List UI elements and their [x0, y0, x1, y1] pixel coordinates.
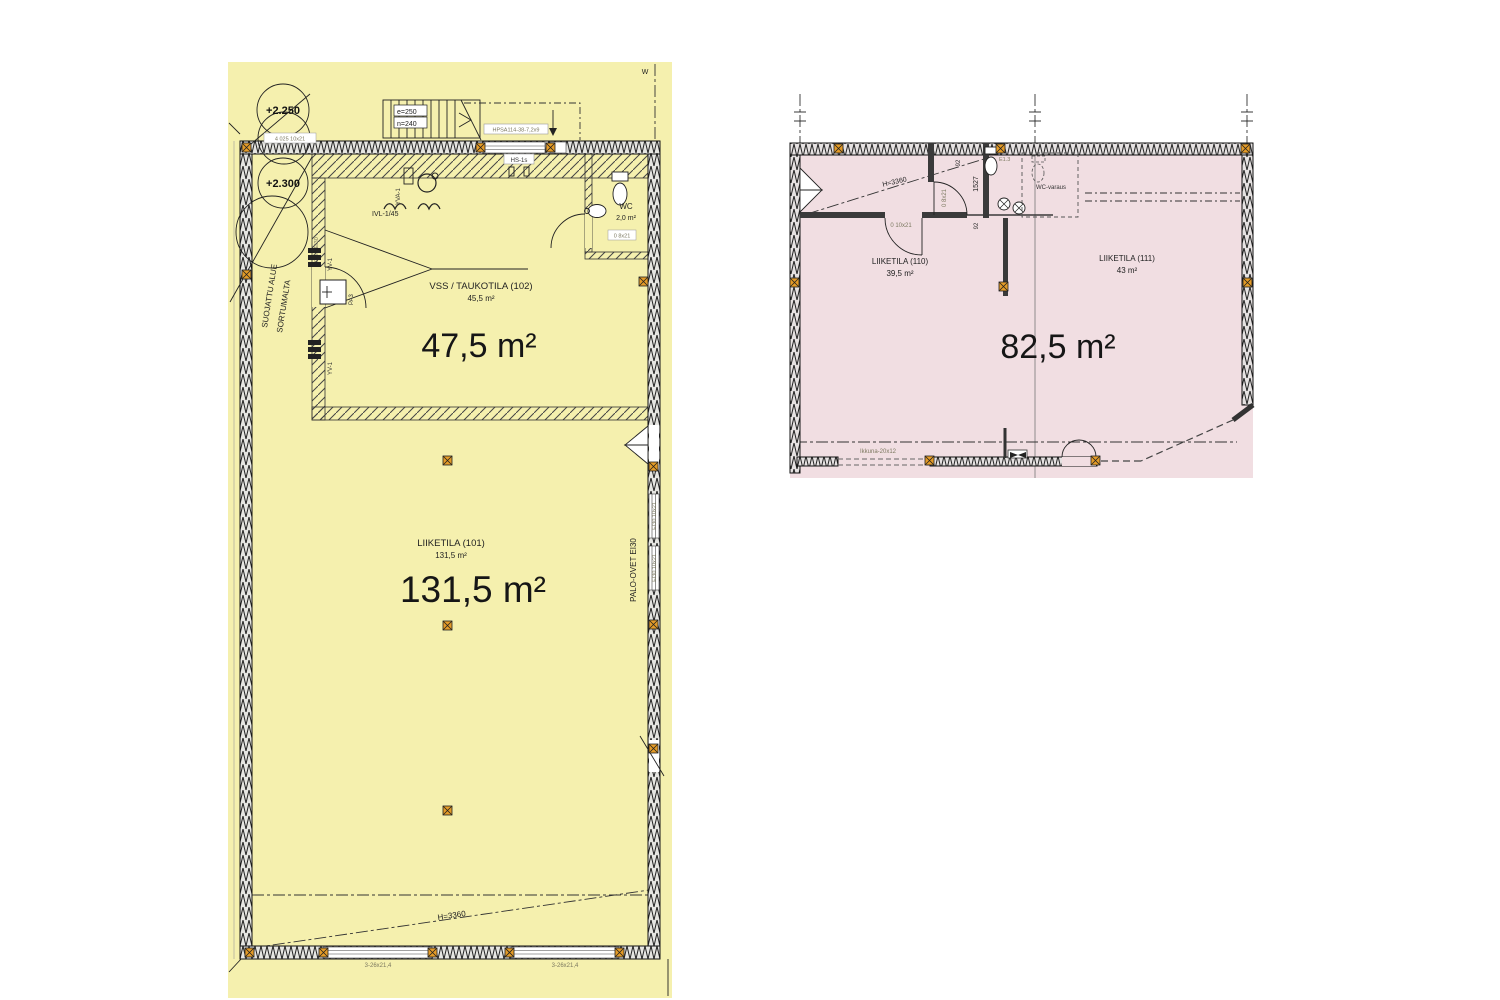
shop-101-title: LIIKETILA (101) — [417, 538, 485, 549]
dim-92-lower: 92 — [974, 222, 980, 229]
toilet-tank-icon — [612, 172, 628, 181]
combined-area-big: 82,5 m² — [1000, 328, 1115, 366]
fire-door-tag-2: EI30 10x21 — [652, 554, 658, 582]
shop-101-area-sub: 131,5 m² — [435, 551, 467, 560]
right-plan-background — [790, 143, 1253, 478]
right-floor-plan: H=3360 Ikkuna-20x12 0 10x21 — [785, 92, 1260, 490]
vss-room-title: VSS / TAUKOTILA (102) — [429, 281, 532, 292]
sink-icon — [588, 205, 606, 218]
pa-tag: PA3 — [349, 293, 355, 305]
toilet-bowl-icon — [985, 157, 997, 175]
fire-door-tag-1: EI30 10x21 — [652, 502, 658, 530]
ivl-tag: IVL-1/45 — [372, 211, 399, 218]
beam-tag: HPSA114-38-7,2x9 — [493, 128, 540, 134]
yv-tag: YV-1 — [328, 257, 334, 271]
left-floor-plan: e=250 n=240 HPSA114-38-7,2x9 HS-1s +2.25… — [228, 62, 672, 998]
shop-110-area: 39,5 m² — [886, 269, 913, 278]
elevation-lower-label: +2.300 — [266, 178, 300, 190]
shop-101-area-big: 131,5 m² — [400, 569, 546, 610]
fire-door-label: PALO-OVET EI30 — [629, 538, 638, 602]
yva-tag: YVA-1 — [396, 187, 402, 205]
dim-1527: 1527 — [973, 176, 980, 192]
vss-room-area-sub: 45,5 m² — [467, 294, 494, 303]
wc-reservation-label: WC-varaus — [1036, 185, 1066, 191]
dim-92-upper: 92 — [956, 159, 962, 166]
shop-110-title: LIIKETILA (110) — [872, 257, 929, 266]
bottom-window-tag-1: 3-26x21,4 — [365, 963, 392, 969]
wc-door-tag: 0 8x21 — [942, 188, 948, 207]
hs-tag: HS-1s — [511, 158, 528, 164]
fixture-tag: E1.3 — [999, 157, 1010, 163]
stair-going-label: e=250 — [397, 109, 417, 116]
window-tag: Ikkuna-20x12 — [860, 449, 897, 455]
floor-plan-canvas: e=250 n=240 HPSA114-38-7,2x9 HS-1s +2.25… — [0, 0, 1500, 1000]
shop-111-area: 43 m² — [1117, 266, 1138, 275]
wc-label: WC — [619, 202, 633, 211]
stair-rise-label: n=240 — [397, 121, 417, 128]
left-plan-background — [228, 62, 672, 998]
corridor-door-tag: 0 10x21 — [890, 223, 912, 229]
bottom-window-tag-2: 3-26x21,4 — [552, 963, 579, 969]
wc-door-tag: 0 8x21 — [614, 234, 631, 240]
grid-axis-label: W — [642, 69, 649, 76]
vss-room-area-big: 47,5 m² — [421, 327, 536, 365]
wc-area-label: 2,0 m² — [616, 215, 637, 222]
window-tag-topleft: 4 025 10x21 — [275, 137, 305, 143]
shop-111-title: LIIKETILA (111) — [1099, 254, 1155, 263]
yv-tag: YV-1 — [328, 361, 334, 375]
elevation-upper-label: +2.250 — [266, 105, 300, 117]
